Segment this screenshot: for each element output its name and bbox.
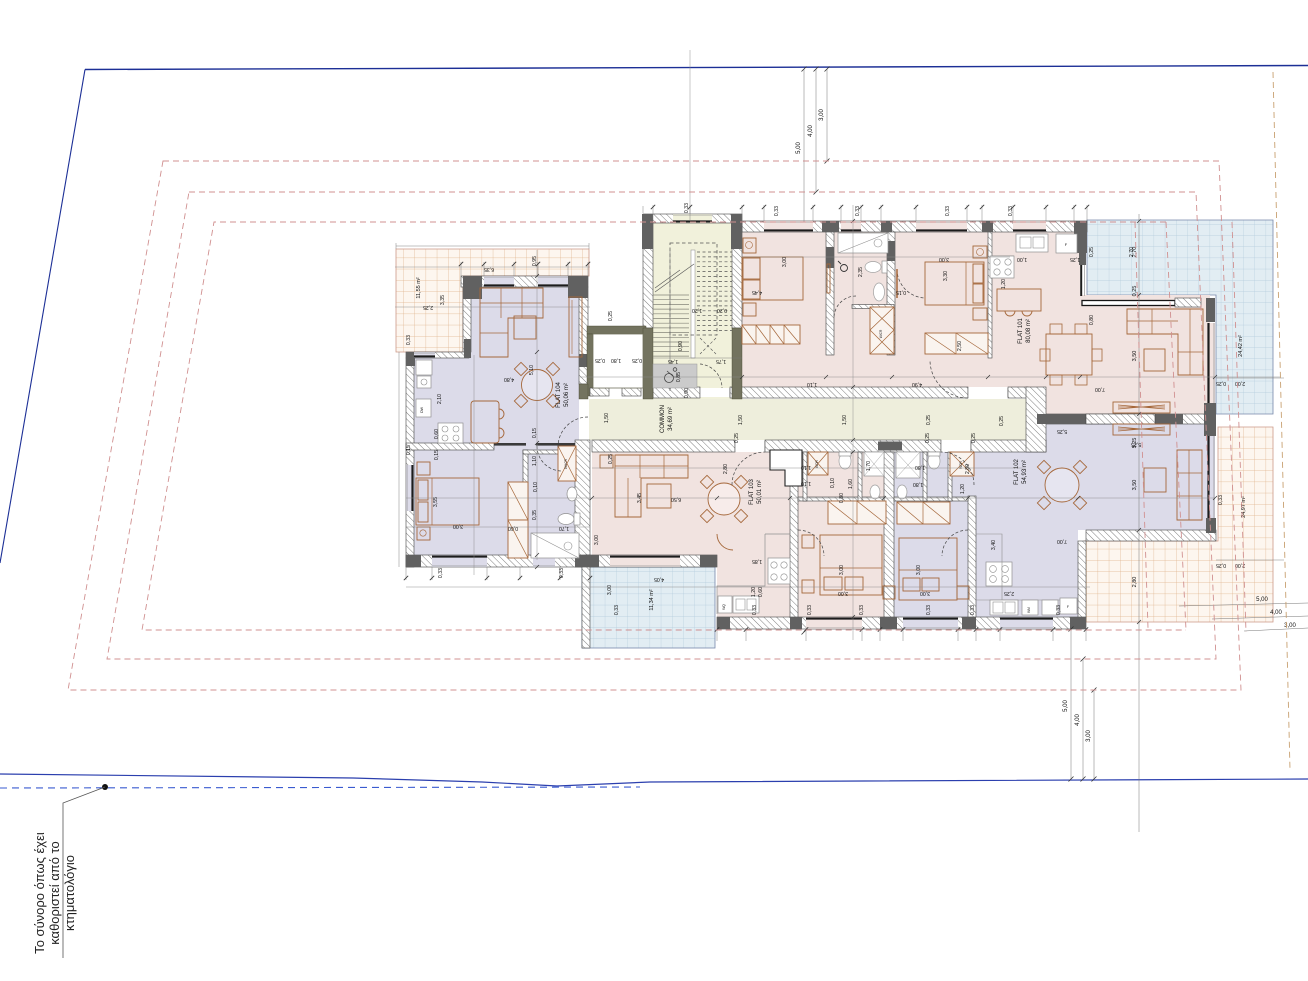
svg-text:34,69 m²: 34,69 m² (668, 407, 674, 431)
svg-text:1,45: 1,45 (668, 358, 678, 364)
svg-text:1,80: 1,80 (913, 481, 923, 487)
svg-text:0,25: 0,25 (999, 416, 1005, 426)
svg-text:7,00: 7,00 (1095, 386, 1105, 392)
svg-text:1,70: 1,70 (866, 461, 872, 471)
svg-text:3,00: 3,00 (1086, 730, 1092, 742)
svg-text:3,00: 3,00 (920, 590, 930, 596)
svg-text:3,45: 3,45 (637, 493, 643, 503)
svg-text:0,60: 0,60 (758, 587, 764, 597)
svg-text:3,00: 3,00 (916, 565, 922, 575)
svg-text:0,33: 0,33 (926, 605, 932, 615)
svg-text:0,35: 0,35 (532, 510, 538, 520)
svg-text:0,25: 0,25 (734, 433, 740, 443)
svg-text:0,33: 0,33 (1218, 495, 1224, 505)
svg-text:0,85: 0,85 (676, 372, 682, 382)
svg-text:0,15: 0,15 (532, 428, 538, 438)
svg-text:F: F (1067, 605, 1069, 609)
svg-text:2,50: 2,50 (957, 341, 963, 351)
svg-text:WM: WM (1027, 607, 1031, 613)
svg-text:0,15: 0,15 (896, 289, 906, 295)
svg-text:2,00: 2,00 (1235, 380, 1245, 386)
svg-text:4,00: 4,00 (1075, 714, 1081, 726)
svg-text:3,00: 3,00 (594, 535, 600, 545)
svg-text:4,80: 4,80 (504, 376, 514, 382)
svg-text:FLAT 102: FLAT 102 (1014, 458, 1020, 484)
svg-text:1,20: 1,20 (692, 307, 702, 313)
svg-text:0,33: 0,33 (970, 605, 976, 615)
svg-text:1,50: 1,50 (738, 415, 744, 425)
svg-text:0,60: 0,60 (434, 429, 440, 439)
svg-text:1,85: 1,85 (752, 558, 762, 564)
svg-text:50,01 m²: 50,01 m² (757, 480, 763, 504)
svg-text:3,00: 3,00 (453, 523, 463, 529)
svg-text:1,20: 1,20 (1001, 279, 1007, 289)
svg-text:1,70: 1,70 (559, 525, 569, 531)
svg-text:1,10: 1,10 (801, 480, 811, 486)
svg-text:DW: DW (420, 406, 424, 413)
svg-text:2,25: 2,25 (1004, 590, 1014, 596)
svg-text:0,25: 0,25 (1216, 562, 1226, 568)
svg-text:4,00: 4,00 (1270, 610, 1282, 616)
svg-text:3,40: 3,40 (991, 540, 997, 550)
svg-text:W/CR: W/CR (879, 329, 883, 338)
svg-text:2,35: 2,35 (858, 267, 864, 277)
svg-text:11,55 m²: 11,55 m² (416, 277, 422, 298)
svg-text:5,25: 5,25 (1131, 441, 1141, 447)
svg-text:0,60: 0,60 (508, 525, 518, 531)
svg-text:0,20: 0,20 (717, 307, 727, 313)
svg-text:1,50: 1,50 (842, 415, 848, 425)
svg-text:1,60: 1,60 (848, 479, 854, 489)
svg-text:3,00: 3,00 (939, 256, 949, 262)
svg-text:WHCR: WHCR (564, 458, 568, 469)
svg-text:0,80: 0,80 (839, 493, 845, 503)
svg-text:5,25: 5,25 (1057, 428, 1067, 434)
svg-text:3,00: 3,00 (782, 257, 788, 267)
svg-text:5,00: 5,00 (796, 142, 802, 154)
svg-text:3,00: 3,00 (839, 565, 845, 575)
svg-text:5,00: 5,00 (1063, 700, 1069, 712)
svg-text:0,25: 0,25 (608, 454, 614, 464)
svg-text:80,08 m²: 80,08 m² (1026, 319, 1032, 343)
svg-text:3,00: 3,00 (607, 585, 613, 595)
svg-text:4,90: 4,90 (912, 381, 922, 387)
svg-text:2,10: 2,10 (437, 394, 443, 404)
svg-text:0,25: 0,25 (926, 415, 932, 425)
svg-text:0,25: 0,25 (971, 433, 977, 443)
svg-text:0,33: 0,33 (1056, 605, 1062, 615)
svg-text:COMMON: COMMON (660, 405, 666, 433)
svg-text:6,50: 6,50 (671, 496, 681, 502)
svg-text:Το σύνορο όπως έχει: Το σύνορο όπως έχει (32, 832, 47, 954)
svg-text:0,33: 0,33 (945, 206, 951, 216)
svg-text:WQ: WQ (722, 604, 726, 610)
svg-text:3,00: 3,00 (819, 109, 825, 121)
svg-text:0,90: 0,90 (678, 341, 684, 351)
svg-text:0,15: 0,15 (406, 445, 412, 455)
svg-text:1,10: 1,10 (807, 381, 817, 387)
svg-text:3,55: 3,55 (433, 497, 439, 507)
svg-text:WDR: WDR (959, 461, 963, 469)
svg-text:κτηματολόγιο: κτηματολόγιο (62, 855, 77, 931)
svg-text:1,75: 1,75 (716, 358, 726, 364)
svg-text:3,00: 3,00 (838, 590, 848, 596)
svg-text:2,80: 2,80 (723, 464, 729, 474)
svg-text:0,25: 0,25 (632, 357, 642, 363)
svg-text:0,33: 0,33 (438, 568, 444, 578)
svg-text:11,34 m²: 11,34 m² (649, 589, 655, 610)
svg-text:2,25: 2,25 (423, 304, 433, 310)
svg-text:FLAT 104: FLAT 104 (556, 381, 562, 407)
svg-text:3,35: 3,35 (440, 295, 446, 305)
svg-text:3,30: 3,30 (943, 271, 949, 281)
svg-text:1,10: 1,10 (532, 456, 538, 466)
svg-text:0,33: 0,33 (859, 605, 865, 615)
svg-text:0,25: 0,25 (608, 311, 614, 321)
svg-text:0,10: 0,10 (533, 482, 539, 492)
svg-text:6,35: 6,35 (484, 266, 494, 272)
svg-text:FLAT 103: FLAT 103 (749, 478, 755, 504)
svg-text:0,33: 0,33 (614, 605, 620, 615)
svg-text:2,80: 2,80 (965, 464, 971, 474)
svg-text:4,45: 4,45 (752, 289, 762, 295)
svg-text:3,50: 3,50 (1132, 351, 1138, 362)
svg-text:καθοριστεί από το: καθοριστεί από το (47, 841, 62, 945)
svg-text:54,93 m²: 54,93 m² (1022, 460, 1028, 484)
svg-text:0,33: 0,33 (752, 605, 758, 615)
svg-text:0,10: 0,10 (830, 478, 836, 488)
svg-text:1,20: 1,20 (751, 587, 757, 597)
svg-text:1,20: 1,20 (960, 484, 966, 494)
svg-text:5,10: 5,10 (529, 365, 535, 375)
svg-text:0,25: 0,25 (925, 433, 931, 443)
svg-text:24,42 m²: 24,42 m² (1238, 335, 1244, 357)
svg-text:0,90: 0,90 (684, 388, 690, 398)
svg-text:1,00: 1,00 (1017, 256, 1027, 262)
svg-text:0,33: 0,33 (774, 206, 780, 216)
svg-text:0,25: 0,25 (1216, 380, 1226, 386)
svg-text:4,05: 4,05 (654, 576, 664, 582)
svg-text:2,70: 2,70 (1129, 247, 1135, 257)
svg-text:7,00: 7,00 (1057, 538, 1067, 544)
svg-text:1,80: 1,80 (611, 357, 621, 363)
svg-text:FLAT 101: FLAT 101 (1018, 317, 1024, 343)
svg-text:0,33: 0,33 (406, 335, 412, 345)
svg-text:2,80: 2,80 (1132, 577, 1138, 588)
svg-text:0,80: 0,80 (1089, 315, 1095, 325)
svg-text:50,06 m²: 50,06 m² (564, 383, 570, 407)
svg-text:5,00: 5,00 (1256, 597, 1268, 603)
svg-text:1,80: 1,80 (915, 464, 925, 470)
svg-text:1,50: 1,50 (604, 413, 610, 423)
svg-text:4,00: 4,00 (808, 125, 814, 137)
svg-text:3,50: 3,50 (1132, 480, 1138, 491)
svg-text:0,15: 0,15 (434, 450, 440, 460)
svg-text:0,33: 0,33 (807, 605, 813, 615)
svg-text:1,10: 1,10 (801, 464, 811, 470)
svg-text:1,25: 1,25 (1070, 256, 1080, 262)
svg-text:WDR: WDR (815, 460, 819, 468)
svg-text:0,25: 0,25 (1089, 247, 1095, 257)
svg-text:0,25: 0,25 (595, 357, 605, 363)
